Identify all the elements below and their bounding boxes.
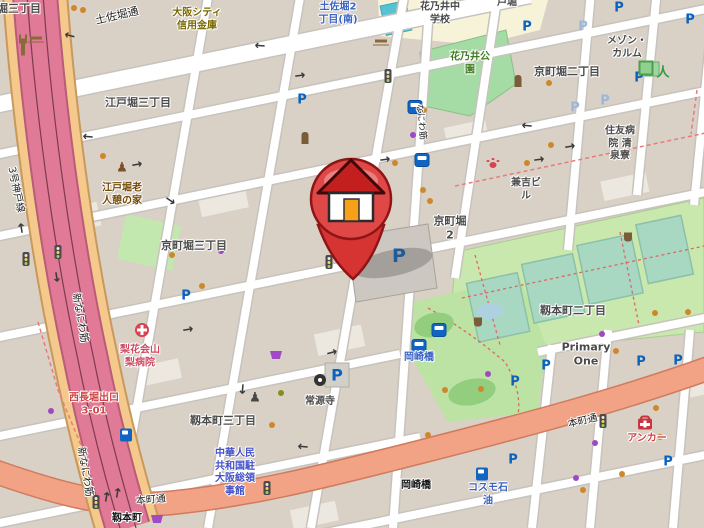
map-viewport[interactable]: PPPPPPPPPPPPPPPPP→→→→→→→→→→→→→→→→→→人♟♟土佐… xyxy=(0,0,704,528)
location-marker[interactable] xyxy=(0,0,704,528)
